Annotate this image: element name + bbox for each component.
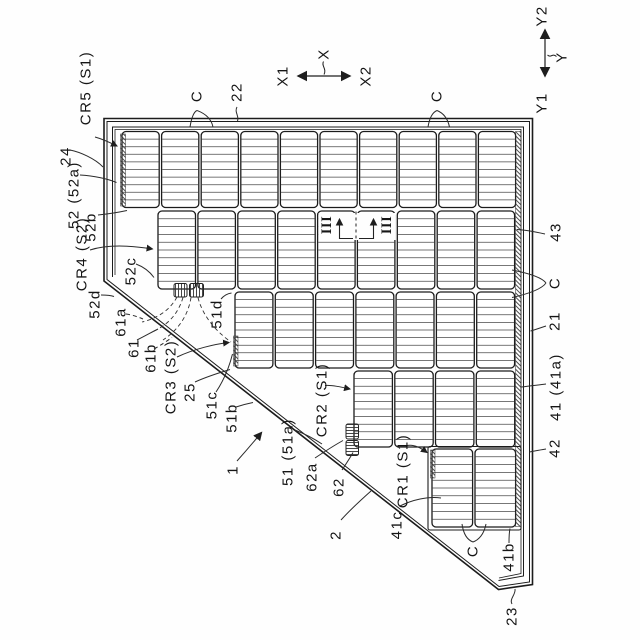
axis-label-x1: X1	[276, 65, 291, 86]
label-cr5: CR5 (S1)	[79, 51, 94, 126]
panel-row-CR2	[354, 371, 515, 447]
axis-label-y1: Y1	[535, 92, 550, 113]
label-51c: 51c	[205, 391, 220, 420]
axis-label-y2: Y2	[535, 5, 550, 26]
axis-label-y: Y	[555, 51, 570, 63]
label-cr4: CR4 (S2)	[75, 217, 90, 292]
axis-label-x2: X2	[359, 65, 374, 86]
label-cr1: CR1 (S1)	[396, 434, 411, 509]
label-1: 1	[226, 465, 241, 475]
axis-indicators	[298, 30, 557, 76]
label-section-iii-right: III	[380, 216, 395, 234]
label-51-51a: 51 (51a)	[281, 418, 296, 486]
label-62a: 62a	[305, 462, 320, 492]
label-41-41a: 41 (41a)	[549, 353, 564, 421]
leader-cr5	[95, 137, 117, 146]
label-section-iii-left: III	[320, 216, 335, 234]
label-c-top-right: C	[430, 90, 445, 102]
label-61a: 61a	[114, 307, 129, 337]
label-c-bottom: C	[466, 545, 481, 557]
leader-cr4	[90, 246, 153, 250]
label-42: 42	[548, 438, 563, 458]
patent-figure: X1 X X2 Y2 Y Y1 C 22 C CR5 (S1) 24 52 (5…	[0, 0, 640, 640]
panel-row-CR1	[432, 449, 516, 527]
label-52d: 52d	[88, 289, 103, 319]
label-cr3: CR3 (S2)	[164, 340, 179, 415]
label-21: 21	[548, 311, 563, 331]
label-cr2: CR2 (S1)	[315, 363, 330, 438]
panel-row-CR3	[235, 292, 515, 368]
leader-52-52a	[80, 175, 117, 183]
label-51b: 51b	[225, 403, 240, 433]
label-2: 2	[329, 530, 344, 540]
label-52c: 52c	[124, 257, 139, 286]
label-25: 25	[183, 382, 198, 402]
x-axis-squiggle	[323, 62, 325, 75]
label-43: 43	[549, 222, 564, 242]
label-41b: 41b	[502, 542, 517, 572]
leader-51d	[221, 293, 232, 299]
label-23: 23	[505, 606, 520, 626]
label-51d: 51d	[210, 299, 225, 329]
leader-41-41a	[522, 384, 547, 387]
right-edge-cell-strip	[516, 132, 522, 527]
axis-label-x: X	[317, 48, 332, 60]
label-c-right: C	[548, 277, 563, 289]
leader-1	[237, 433, 262, 462]
label-c-top-left: C	[190, 90, 205, 102]
label-61b: 61b	[144, 343, 159, 373]
leader-23	[511, 589, 515, 604]
label-22: 22	[230, 82, 245, 102]
label-61: 61	[127, 338, 142, 358]
label-62: 62	[332, 477, 347, 497]
label-41c: 41c	[390, 511, 405, 540]
leader-41b	[509, 529, 510, 544]
panel-row-CR5	[122, 132, 516, 208]
